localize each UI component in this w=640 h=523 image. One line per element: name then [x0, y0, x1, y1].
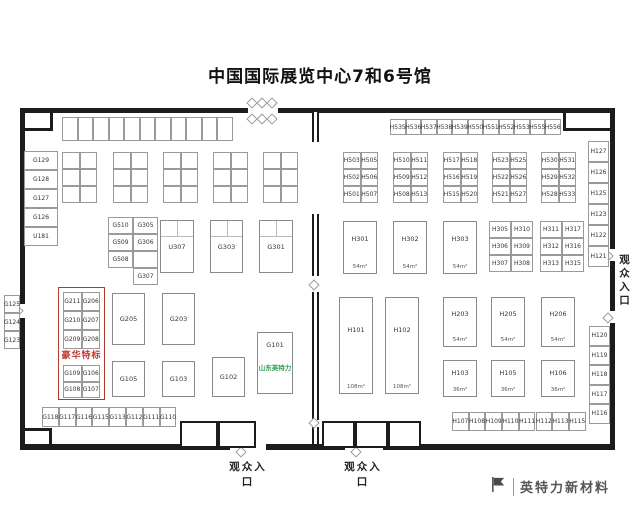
booth-label: G303: [211, 243, 242, 251]
grid-cell: [181, 186, 199, 203]
booth-H525: H525: [510, 152, 528, 169]
booth-label: H102: [386, 326, 418, 334]
booth-size: 54m²: [444, 337, 476, 343]
booth-H536: H536: [406, 119, 422, 135]
booth-H116: H116: [589, 404, 610, 424]
booth-G116: G116: [76, 407, 93, 427]
booth-G115: G115: [92, 407, 109, 427]
booth-H121: H121: [588, 246, 609, 267]
door-marker: [602, 312, 613, 323]
booth-size: 36m²: [444, 387, 476, 393]
strip-cell: [217, 117, 233, 141]
booth-H509: H509: [393, 169, 411, 186]
floor-plan-screenshot: 中国国际展览中心7和6号馆 H535H536H537H538H539H550H5…: [0, 0, 640, 523]
grid-cell: [163, 152, 181, 169]
booth-H206: H20654m²: [541, 297, 575, 347]
booth-H316: H316: [562, 238, 584, 255]
booth-G509: G509: [108, 234, 133, 251]
strip-cell: [155, 117, 171, 141]
grid-cell: [281, 186, 299, 203]
grid-cell: [113, 169, 131, 186]
strip-cell: [93, 117, 109, 141]
booth-G111: G111: [143, 407, 160, 427]
booth-G128: G128: [24, 170, 58, 189]
booth-H531: H531: [559, 152, 577, 169]
booth-H538: H538: [437, 119, 453, 135]
booth-H103: H10336m²: [443, 360, 477, 397]
strip-cell: [78, 117, 94, 141]
grid-cell: [263, 169, 281, 186]
strip-cell: [202, 117, 218, 141]
booth-H309: H309: [511, 238, 533, 255]
booth-label: H303: [444, 235, 476, 243]
service-room: [180, 421, 218, 448]
booth-H106: H10636m²: [541, 360, 575, 397]
booth-G105: G105: [112, 361, 145, 397]
strip-cell: [140, 117, 156, 141]
booth-size: 54m²: [492, 337, 524, 343]
grid-cell: [181, 169, 199, 186]
booth-label: H203: [444, 310, 476, 318]
booth-label: G102: [213, 373, 244, 381]
grid-cell: [181, 152, 199, 169]
strip-cell: [62, 117, 78, 141]
booth-H528: H528: [541, 186, 559, 203]
booth-H551: H551: [483, 119, 499, 135]
booth-H520: H520: [461, 186, 479, 203]
booth-H110: H110: [502, 412, 519, 431]
page-title: 中国国际展览中心7和6号馆: [0, 62, 640, 87]
booth-G127: G127: [24, 189, 58, 208]
booth-H505: H505: [361, 152, 379, 169]
booth-G205: G205: [112, 293, 145, 345]
booth-H307: H307: [489, 255, 511, 272]
booth-H522: H522: [492, 169, 510, 186]
booth-H107: H107: [452, 412, 469, 431]
booth-label: H106: [542, 369, 574, 377]
wall: [20, 108, 248, 113]
wall: [610, 323, 615, 449]
booth-H205: H20554m²: [491, 297, 525, 347]
service-room: [322, 421, 355, 448]
booth-H118: H118: [589, 365, 610, 385]
grid-cell: [131, 152, 149, 169]
booth-H512: H512: [411, 169, 429, 186]
booth-H311: H311: [540, 221, 562, 238]
booth-label: G301: [260, 243, 292, 251]
booth-G303: G303: [210, 220, 243, 273]
booth-label: G103: [163, 375, 194, 383]
booth-H115: H115: [569, 412, 586, 431]
watermark-divider: [513, 478, 514, 496]
booth-H312: H312: [540, 238, 562, 255]
booth-H113: H113: [552, 412, 569, 431]
booth-size: 54m²: [394, 264, 426, 270]
booth-label: H103: [444, 369, 476, 377]
grid-cell: [80, 169, 98, 186]
booth-H112: H112: [536, 412, 553, 431]
grid-cell: [263, 152, 281, 169]
booth-H519: H519: [461, 169, 479, 186]
grid-cell: [113, 186, 131, 203]
visitor-entrance-label-left: 观众入口: [224, 459, 272, 489]
booth-H108: H108: [469, 412, 486, 431]
booth-H126: H126: [588, 162, 609, 183]
watermark: 英特力新材料: [490, 476, 610, 497]
booth-size: 54m²: [542, 337, 574, 343]
booth-H306: H306: [489, 238, 511, 255]
door-marker: [266, 97, 277, 108]
booth-label: G101: [258, 341, 292, 349]
booth-label: G205: [113, 315, 144, 323]
booth-H503: H503: [343, 152, 361, 169]
watermark-brand: 英特力新材料: [520, 477, 610, 496]
booth-G102: G102: [212, 357, 245, 397]
booth-H127: H127: [588, 141, 609, 162]
booth-label: G203: [163, 315, 194, 323]
booth-H537: H537: [421, 119, 437, 135]
booth-U307: U307: [160, 220, 194, 273]
booth-G305: G305: [133, 217, 158, 234]
booth-H305: H305: [489, 221, 511, 238]
booth-H517: H517: [443, 152, 461, 169]
booth-G126: G126: [24, 208, 58, 227]
strip-cell: [124, 117, 140, 141]
grid-cell: [80, 152, 98, 169]
booth-G101: G101山东英特力: [257, 332, 293, 394]
grid-cell: [231, 169, 249, 186]
booth-H539: H539: [452, 119, 468, 135]
booth-H502: H502: [343, 169, 361, 186]
grid-cell: [62, 169, 80, 186]
deluxe-booth-frame: [58, 287, 105, 400]
booth-H510: H510: [393, 152, 411, 169]
booth-size: 36m²: [492, 387, 524, 393]
booth-H530: H530: [541, 152, 559, 169]
booth-label: H302: [394, 235, 426, 243]
door-marker: [308, 279, 319, 290]
grid-cell: [133, 251, 158, 268]
grid-cell: [281, 169, 299, 186]
door-marker: [235, 446, 246, 457]
corridor-wall: [312, 112, 319, 142]
booth-H317: H317: [562, 221, 584, 238]
booth-H511: H511: [411, 152, 429, 169]
booth-H301: H30154m²: [343, 221, 377, 274]
booth-G124: G124: [4, 313, 20, 331]
booth-H310: H310: [511, 221, 533, 238]
booth-size: 108m²: [386, 384, 418, 390]
booth-U181: U181: [24, 227, 58, 246]
corridor-wall: [312, 292, 319, 420]
booth-H123: H123: [588, 204, 609, 225]
booth-G113: G113: [109, 407, 126, 427]
booth-H523: H523: [492, 152, 510, 169]
booth-label: H101: [340, 326, 372, 334]
booth-G125: G125: [4, 295, 20, 313]
grid-cell: [213, 169, 231, 186]
booth-H553: H553: [514, 119, 530, 135]
booth-H506: H506: [361, 169, 379, 186]
booth-H508: H508: [393, 186, 411, 203]
visitor-entrance-label-side: 观众入口: [617, 254, 632, 308]
booth-H527: H527: [510, 186, 528, 203]
booth-H125: H125: [588, 183, 609, 204]
booth-H120: H120: [589, 326, 610, 346]
booth-G123: G123: [4, 331, 20, 349]
booth-H203: H20354m²: [443, 297, 477, 347]
strip-cell: [171, 117, 187, 141]
booth-H303: H30354m²: [443, 221, 477, 274]
booth-H555: H555: [530, 119, 546, 135]
corridor-wall: [312, 214, 319, 276]
corridor-wall: [312, 427, 319, 444]
booth-H550: H550: [468, 119, 484, 135]
booth-H109: H109: [485, 412, 502, 431]
booth-H526: H526: [510, 169, 528, 186]
booth-H513: H513: [411, 186, 429, 203]
booth-G117: G117: [59, 407, 76, 427]
booth-H111: H111: [519, 412, 536, 431]
grid-cell: [213, 186, 231, 203]
booth-label: H205: [492, 310, 524, 318]
grid-cell: [263, 186, 281, 203]
booth-G301: G301: [259, 220, 293, 273]
booth-H102: H102108m²: [385, 297, 419, 394]
deluxe-booth-label: 豪华特标: [58, 348, 105, 361]
booth-H518: H518: [461, 152, 479, 169]
booth-label: H301: [344, 235, 376, 243]
booth-size: 108m²: [340, 384, 372, 390]
booth-H552: H552: [499, 119, 515, 135]
grid-cell: [131, 186, 149, 203]
grid-cell: [62, 152, 80, 169]
booth-label: H105: [492, 369, 524, 377]
door-marker: [266, 113, 277, 124]
wall: [25, 428, 51, 431]
grid-cell: [80, 186, 98, 203]
booth-G110: G110: [160, 407, 177, 427]
booth-H532: H532: [559, 169, 577, 186]
booth-H521: H521: [492, 186, 510, 203]
booth-H315: H315: [562, 255, 584, 272]
service-room: [218, 421, 256, 448]
grid-cell: [163, 186, 181, 203]
booth-H556: H556: [545, 119, 561, 135]
grid-cell: [213, 152, 231, 169]
exhibitor-name: 山东英特力: [258, 362, 292, 372]
grid-cell: [231, 186, 249, 203]
booth-G112: G112: [126, 407, 143, 427]
strip-cell: [109, 117, 125, 141]
booth-H302: H30254m²: [393, 221, 427, 274]
grid-cell: [163, 169, 181, 186]
booth-label: H206: [542, 310, 574, 318]
booth-label: G105: [113, 375, 144, 383]
flag-icon: [490, 476, 507, 497]
booth-H529: H529: [541, 169, 559, 186]
booth-H117: H117: [589, 385, 610, 405]
booth-H535: H535: [390, 119, 406, 135]
booth-H119: H119: [589, 346, 610, 366]
wall: [563, 128, 615, 131]
booth-H516: H516: [443, 169, 461, 186]
booth-G203: G203: [162, 293, 195, 345]
booth-H122: H122: [588, 225, 609, 246]
wall: [610, 108, 615, 249]
booth-G129: G129: [24, 151, 58, 170]
service-room: [355, 421, 388, 448]
booth-H501: H501: [343, 186, 361, 203]
strip-cell: [186, 117, 202, 141]
booth-G307: G307: [133, 268, 158, 285]
grid-cell: [62, 186, 80, 203]
grid-cell: [131, 169, 149, 186]
booth-H533: H533: [559, 186, 577, 203]
booth-label: U307: [161, 243, 193, 251]
booth-size: 54m²: [344, 264, 376, 270]
booth-G118: G118: [42, 407, 59, 427]
booth-H515: H515: [443, 186, 461, 203]
booth-G103: G103: [162, 361, 195, 397]
service-room: [388, 421, 421, 448]
visitor-entrance-label-right: 观众入口: [339, 459, 387, 489]
booth-G306: G306: [133, 234, 158, 251]
booth-H105: H10536m²: [491, 360, 525, 397]
booth-size: 54m²: [444, 264, 476, 270]
booth-H308: H308: [511, 255, 533, 272]
booth-H101: H101108m²: [339, 297, 373, 394]
grid-cell: [231, 152, 249, 169]
booth-size: 36m²: [542, 387, 574, 393]
door-marker: [350, 446, 361, 457]
grid-cell: [281, 152, 299, 169]
booth-H313: H313: [540, 255, 562, 272]
booth-H507: H507: [361, 186, 379, 203]
booth-G510: G510: [108, 217, 133, 234]
booth-G508: G508: [108, 251, 133, 268]
grid-cell: [113, 152, 131, 169]
wall: [610, 261, 615, 311]
